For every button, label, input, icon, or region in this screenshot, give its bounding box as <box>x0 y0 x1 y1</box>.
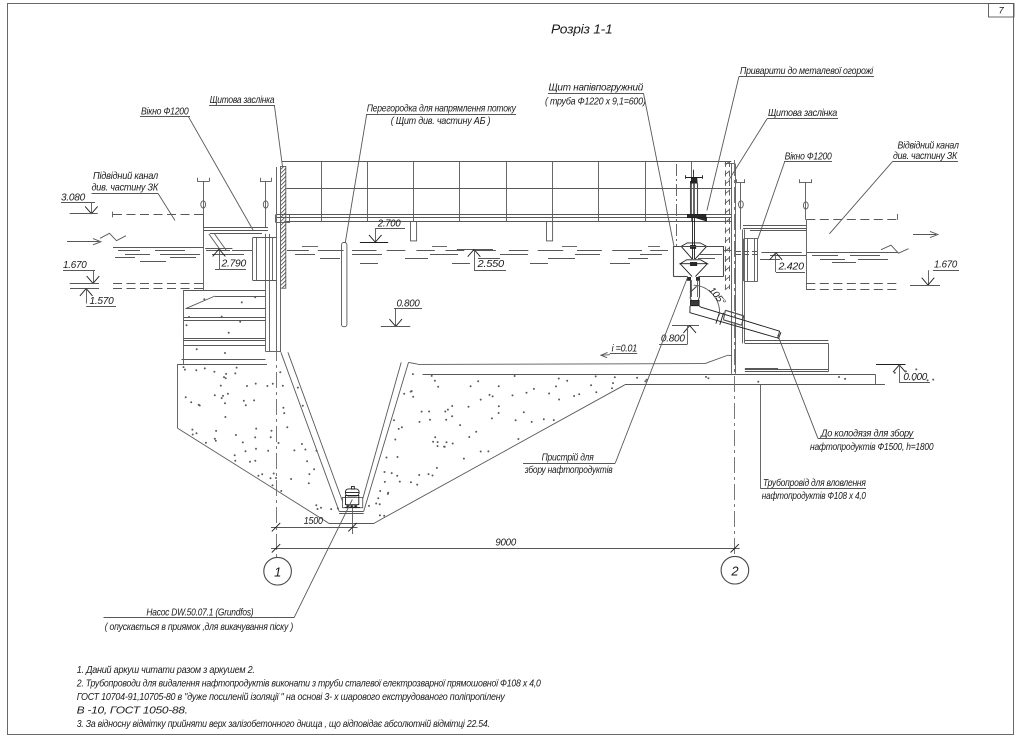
svg-text:105°: 105° <box>707 285 728 307</box>
svg-text:ГОСТ 10704-91,10705-80 в "д: ГОСТ 10704-91,10705-80 в "дуже посиленій… <box>77 692 506 703</box>
svg-text:див. частину ЗК: див. частину ЗК <box>92 183 160 194</box>
svg-text:( опускається в приямок ,для в: ( опускається в приямок ,для викачування… <box>105 622 293 633</box>
svg-text:3.080: 3.080 <box>61 193 86 204</box>
svg-text:9000: 9000 <box>495 537 516 548</box>
svg-text:2.550: 2.550 <box>476 259 504 270</box>
svg-text:Трубопровід для вловлення: Трубопровід для вловлення <box>763 477 866 489</box>
svg-text:1. Даний аркуш читати разом: 1. Даний аркуш читати разом з аркушем 2. <box>77 665 255 676</box>
svg-text:1.570: 1.570 <box>90 296 115 307</box>
svg-text:1500: 1500 <box>304 516 324 527</box>
svg-text:2. Трубопроводи для видалення: 2. Трубопроводи для видалення нафтопроду… <box>76 678 541 690</box>
svg-text:Щитова заслінка: Щитова заслінка <box>768 108 838 119</box>
svg-text:Розріз 1-1: Розріз 1-1 <box>551 23 612 37</box>
svg-text:Вікно Ф1200: Вікно Ф1200 <box>785 151 832 162</box>
svg-text:нафтопродуктів Ф1500, h=1800: нафтопродуктів Ф1500, h=1800 <box>810 441 934 453</box>
svg-text:i =0.01: i =0.01 <box>612 343 637 354</box>
svg-text:нафтопродуктів Ф108 х 4,0: нафтопродуктів Ф108 х 4,0 <box>762 490 866 502</box>
svg-text:2.700: 2.700 <box>377 218 401 229</box>
svg-text:Насос DW.50.07.1 (Grundfos): Насос DW.50.07.1 (Grundfos) <box>146 608 253 619</box>
svg-text:2.420: 2.420 <box>777 261 804 272</box>
svg-text:В -10, ГОСТ 1050-88.: В -10, ГОСТ 1050-88. <box>77 706 188 717</box>
svg-text:1: 1 <box>274 565 281 580</box>
svg-text:1.670: 1.670 <box>63 260 87 271</box>
svg-text:До колодязя для збору: До колодязя для збору <box>820 427 914 439</box>
svg-text:збору нафтопродуктів: збору нафтопродуктів <box>524 464 613 476</box>
svg-text:( Щит див. частину АБ ): ( Щит див. частину АБ ) <box>391 116 491 127</box>
svg-text:1.670: 1.670 <box>934 260 958 271</box>
svg-text:( труба Ф1220 х 9,1=600): ( труба Ф1220 х 9,1=600) <box>545 95 646 107</box>
svg-text:2: 2 <box>730 564 739 579</box>
svg-text:Перегородка для напрямлення по: Перегородка для напрямлення потоку <box>367 104 517 115</box>
svg-text:див. частину ЗК: див. частину ЗК <box>893 151 958 162</box>
svg-text:2.790: 2.790 <box>220 258 246 269</box>
svg-text:0.800: 0.800 <box>661 333 685 344</box>
svg-text:Щит напівпогружний: Щит напівпогружний <box>549 83 644 94</box>
svg-text:Вікно Ф1200: Вікно Ф1200 <box>141 107 189 118</box>
svg-text:Підвідний канал: Підвідний канал <box>93 171 158 182</box>
svg-text:0.800: 0.800 <box>397 298 421 309</box>
svg-text:7: 7 <box>998 6 1004 17</box>
svg-text:3. За відносну відмітку прийн: 3. За відносну відмітку прийняти верх за… <box>77 718 490 730</box>
svg-text:Щитова заслінка: Щитова заслінка <box>210 95 275 106</box>
svg-text:0.000: 0.000 <box>903 372 927 383</box>
svg-text:Приварити до металевої огорожі: Приварити до металевої огорожі <box>740 66 874 77</box>
svg-text:Пристрій для: Пристрій для <box>542 452 595 463</box>
